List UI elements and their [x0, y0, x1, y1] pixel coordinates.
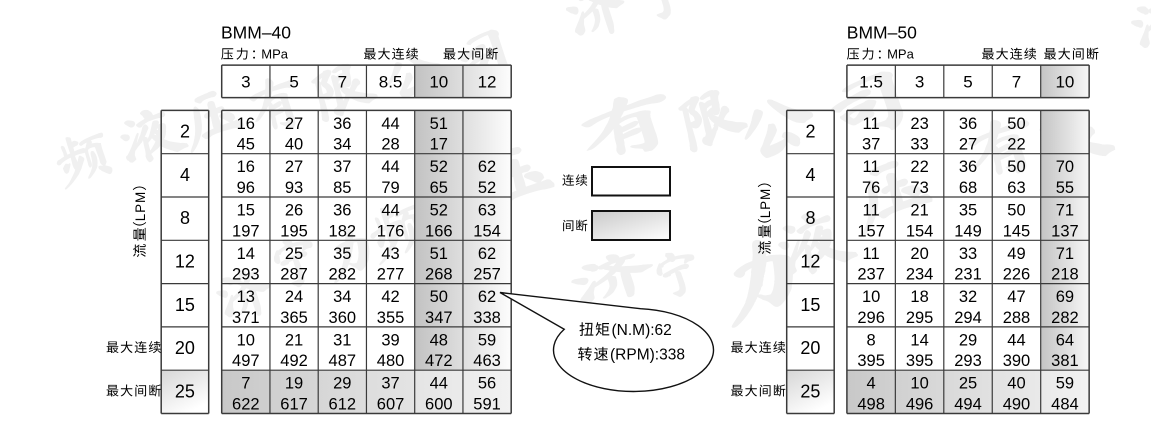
svg-text:4: 4 — [805, 165, 815, 185]
svg-text:10: 10 — [429, 72, 448, 91]
svg-text:12: 12 — [175, 251, 195, 271]
svg-text:154: 154 — [473, 222, 501, 240]
svg-text:492: 492 — [280, 352, 308, 370]
svg-text:62: 62 — [478, 288, 496, 306]
svg-text:166: 166 — [425, 222, 453, 240]
svg-text:36: 36 — [333, 202, 351, 220]
svg-text:21: 21 — [910, 202, 928, 220]
svg-text:197: 197 — [232, 222, 260, 240]
svg-text:11: 11 — [863, 158, 880, 176]
svg-text:282: 282 — [1051, 309, 1079, 327]
svg-text:463: 463 — [473, 352, 501, 370]
svg-text:1.5: 1.5 — [859, 72, 883, 91]
svg-text:226: 226 — [1003, 266, 1031, 284]
svg-text:63: 63 — [478, 202, 496, 220]
svg-text:277: 277 — [377, 266, 405, 284]
svg-text:195: 195 — [280, 222, 308, 240]
svg-text:15: 15 — [800, 295, 820, 315]
svg-text:71: 71 — [1056, 202, 1074, 220]
svg-text:154: 154 — [906, 222, 934, 240]
svg-text:15: 15 — [175, 295, 195, 315]
svg-text:35: 35 — [333, 245, 351, 263]
svg-text:76: 76 — [862, 179, 880, 197]
svg-text:27: 27 — [285, 158, 303, 176]
svg-text:52: 52 — [430, 158, 448, 176]
svg-text:11: 11 — [863, 202, 880, 220]
svg-text:20: 20 — [910, 245, 928, 263]
svg-text:44: 44 — [381, 202, 399, 220]
svg-text:29: 29 — [333, 375, 351, 393]
svg-text:390: 390 — [1003, 352, 1031, 370]
svg-text:BMM–50: BMM–50 — [847, 23, 917, 43]
svg-text:293: 293 — [232, 266, 260, 284]
svg-text:295: 295 — [906, 309, 934, 327]
svg-text:59: 59 — [1056, 375, 1074, 393]
svg-text:3: 3 — [915, 72, 924, 91]
svg-text:288: 288 — [1003, 309, 1031, 327]
svg-text:44: 44 — [430, 375, 448, 393]
svg-text:(N.M):62: (N.M):62 — [612, 322, 672, 339]
svg-text:268: 268 — [425, 266, 453, 284]
svg-text:395: 395 — [906, 352, 934, 370]
svg-text:96: 96 — [237, 179, 255, 197]
svg-text:43: 43 — [381, 245, 399, 263]
svg-text:70: 70 — [1056, 158, 1074, 176]
svg-text:8: 8 — [180, 208, 190, 228]
svg-text:26: 26 — [285, 202, 303, 220]
svg-text:12: 12 — [478, 72, 497, 91]
svg-text:2: 2 — [805, 122, 815, 142]
svg-text:19: 19 — [285, 375, 303, 393]
svg-text:28: 28 — [381, 136, 399, 154]
svg-text:237: 237 — [857, 266, 885, 284]
svg-text:20: 20 — [800, 338, 820, 358]
svg-text:591: 591 — [473, 396, 501, 414]
svg-text:44: 44 — [381, 115, 399, 133]
svg-text:52: 52 — [478, 179, 496, 197]
svg-text:33: 33 — [910, 136, 928, 154]
svg-text:338: 338 — [473, 309, 501, 327]
svg-text:23: 23 — [910, 115, 928, 133]
svg-text:50: 50 — [1007, 202, 1025, 220]
svg-text:32: 32 — [959, 288, 977, 306]
svg-text:65: 65 — [430, 179, 448, 197]
svg-text:10: 10 — [1055, 72, 1074, 91]
svg-text:296: 296 — [857, 309, 885, 327]
svg-text:8: 8 — [805, 208, 815, 228]
svg-text:381: 381 — [1051, 352, 1079, 370]
svg-text:34: 34 — [333, 288, 351, 306]
svg-text:40: 40 — [285, 136, 303, 154]
svg-text:5: 5 — [963, 72, 972, 91]
svg-text:257: 257 — [473, 266, 501, 284]
svg-text:3: 3 — [241, 72, 250, 91]
svg-text:51: 51 — [430, 245, 448, 263]
svg-text:12: 12 — [800, 251, 820, 271]
svg-text:145: 145 — [1003, 222, 1031, 240]
svg-text:50: 50 — [430, 288, 448, 306]
svg-text:25: 25 — [285, 245, 303, 263]
svg-text:73: 73 — [910, 179, 928, 197]
svg-text:27: 27 — [959, 136, 977, 154]
svg-text:49: 49 — [1007, 245, 1025, 263]
svg-text:22: 22 — [1007, 136, 1025, 154]
svg-text:16: 16 — [237, 158, 255, 176]
svg-text:MPa: MPa — [887, 47, 915, 62]
svg-text:36: 36 — [959, 115, 977, 133]
svg-text:21: 21 — [285, 331, 303, 349]
svg-text:4: 4 — [180, 165, 190, 185]
svg-text:347: 347 — [425, 309, 453, 327]
svg-text:8: 8 — [867, 331, 876, 349]
svg-text:85: 85 — [333, 179, 351, 197]
svg-text:59: 59 — [478, 331, 496, 349]
svg-text:617: 617 — [280, 396, 308, 414]
svg-text:622: 622 — [232, 396, 260, 414]
svg-text:35: 35 — [959, 202, 977, 220]
svg-text:50: 50 — [1007, 158, 1025, 176]
svg-text:472: 472 — [425, 352, 453, 370]
svg-text:395: 395 — [857, 352, 885, 370]
svg-text:BMM–40: BMM–40 — [221, 23, 291, 43]
svg-text:22: 22 — [910, 158, 928, 176]
svg-text:68: 68 — [959, 179, 977, 197]
svg-text:294: 294 — [954, 309, 982, 327]
svg-text:182: 182 — [329, 222, 357, 240]
svg-text:607: 607 — [377, 396, 405, 414]
svg-text:490: 490 — [1003, 396, 1031, 414]
svg-text:14: 14 — [910, 331, 928, 349]
svg-text:37: 37 — [333, 158, 351, 176]
svg-text:16: 16 — [237, 115, 255, 133]
svg-text:360: 360 — [329, 309, 357, 327]
svg-text:62: 62 — [478, 158, 496, 176]
svg-text:25: 25 — [959, 375, 977, 393]
svg-text:27: 27 — [285, 115, 303, 133]
svg-text:137: 137 — [1051, 222, 1079, 240]
svg-text:(RPM):338: (RPM):338 — [610, 347, 685, 364]
svg-text:MPa: MPa — [261, 47, 289, 62]
svg-text:LPM: LPM — [133, 191, 148, 221]
svg-text:293: 293 — [954, 352, 982, 370]
svg-text:287: 287 — [280, 266, 308, 284]
svg-text:37: 37 — [381, 375, 399, 393]
svg-text:69: 69 — [1056, 288, 1074, 306]
svg-text:45: 45 — [237, 136, 255, 154]
svg-text:50: 50 — [1007, 115, 1025, 133]
svg-text:487: 487 — [329, 352, 357, 370]
svg-text:64: 64 — [1056, 331, 1074, 349]
svg-text:79: 79 — [381, 179, 399, 197]
svg-text:282: 282 — [329, 266, 357, 284]
svg-text:56: 56 — [478, 375, 496, 393]
svg-text:8.5: 8.5 — [379, 72, 403, 91]
svg-text:11: 11 — [863, 245, 880, 263]
svg-text:37: 37 — [862, 136, 880, 154]
svg-text:17: 17 — [430, 136, 448, 154]
svg-text:31: 31 — [333, 331, 351, 349]
svg-text:51: 51 — [430, 115, 448, 133]
svg-text:365: 365 — [280, 309, 308, 327]
svg-text:71: 71 — [1056, 245, 1074, 263]
svg-text:10: 10 — [910, 375, 928, 393]
svg-text:20: 20 — [175, 338, 195, 358]
svg-text:34: 34 — [333, 136, 351, 154]
svg-text:355: 355 — [377, 309, 405, 327]
svg-text:4: 4 — [867, 375, 876, 393]
svg-text:36: 36 — [333, 115, 351, 133]
svg-text:62: 62 — [478, 245, 496, 263]
svg-text:LPM: LPM — [758, 188, 773, 218]
svg-text:33: 33 — [959, 245, 977, 263]
svg-text:498: 498 — [857, 396, 885, 414]
svg-text:15: 15 — [237, 202, 255, 220]
svg-text:497: 497 — [232, 352, 260, 370]
svg-text:44: 44 — [381, 158, 399, 176]
svg-text:55: 55 — [1056, 179, 1074, 197]
svg-text:231: 231 — [954, 266, 982, 284]
svg-text:14: 14 — [237, 245, 255, 263]
svg-text:13: 13 — [237, 288, 255, 306]
svg-text:48: 48 — [430, 331, 448, 349]
svg-text:7: 7 — [241, 375, 250, 393]
svg-text:7: 7 — [338, 72, 347, 91]
svg-text:5: 5 — [289, 72, 298, 91]
svg-text:234: 234 — [906, 266, 934, 284]
svg-text:600: 600 — [425, 396, 453, 414]
svg-text:25: 25 — [800, 381, 820, 401]
svg-text:480: 480 — [377, 352, 405, 370]
svg-text:24: 24 — [285, 288, 303, 306]
svg-text:218: 218 — [1051, 266, 1079, 284]
svg-text:52: 52 — [430, 202, 448, 220]
svg-text:36: 36 — [959, 158, 977, 176]
svg-text:11: 11 — [863, 115, 880, 133]
svg-text:10: 10 — [862, 288, 880, 306]
svg-text:40: 40 — [1007, 375, 1025, 393]
svg-text:612: 612 — [329, 396, 357, 414]
svg-text:63: 63 — [1007, 179, 1025, 197]
svg-text:44: 44 — [1007, 331, 1025, 349]
svg-text:39: 39 — [381, 331, 399, 349]
svg-text:149: 149 — [954, 222, 982, 240]
svg-text:371: 371 — [232, 309, 260, 327]
svg-text:25: 25 — [175, 381, 195, 401]
svg-text:47: 47 — [1007, 288, 1025, 306]
svg-text:18: 18 — [910, 288, 928, 306]
svg-text:2: 2 — [180, 122, 190, 142]
svg-text:93: 93 — [285, 179, 303, 197]
svg-text:10: 10 — [237, 331, 255, 349]
svg-text:42: 42 — [381, 288, 399, 306]
svg-text:484: 484 — [1051, 396, 1079, 414]
svg-text:7: 7 — [1012, 72, 1021, 91]
svg-text:176: 176 — [377, 222, 405, 240]
svg-text:29: 29 — [959, 331, 977, 349]
svg-text:157: 157 — [857, 222, 885, 240]
svg-text:494: 494 — [954, 396, 982, 414]
svg-text:496: 496 — [906, 396, 934, 414]
